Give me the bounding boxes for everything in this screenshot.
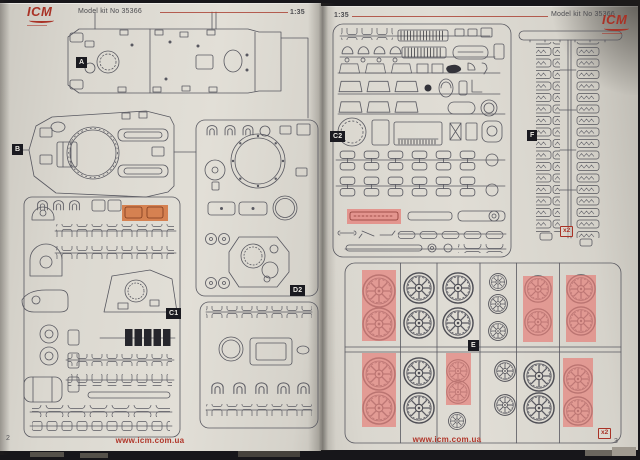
website-url-right: www.icm.com.ua — [392, 435, 502, 444]
brand-text: ICM — [602, 12, 627, 27]
sprue-c1-drawing — [22, 197, 180, 437]
kit-number-left: Model kit No 35366 — [78, 8, 142, 15]
sprue-label-f: F — [527, 130, 537, 141]
page-number-right: 3 — [614, 438, 618, 445]
sprue-e-quantity-badge: x2 — [598, 428, 611, 439]
logo-tagline-rule — [27, 25, 47, 26]
website-url-left: www.icm.com.ua — [95, 436, 205, 445]
sprue-d2-drawing — [196, 120, 318, 296]
icm-logo-right: ICM — [602, 13, 627, 34]
sprue-label-b: B — [12, 144, 23, 155]
photo-of-open-instruction-booklet: ICM Model kit No 35366 1:35 1:35 Model k… — [0, 0, 640, 460]
sprue-f-quantity-badge: x2 — [560, 226, 573, 237]
sprue-b-drawing — [18, 111, 196, 197]
sprue-label-a: A — [76, 57, 87, 68]
highlighted-parts-overlay — [362, 270, 596, 427]
sprue-label-c2: C2 — [330, 131, 345, 142]
sprue-label-e: E — [468, 340, 479, 351]
sprue-label-c1: C1 — [166, 308, 181, 319]
sprue-e-drawing — [345, 263, 621, 443]
sprue-d2-lower-drawing — [200, 302, 318, 428]
logo-tagline-rule — [602, 33, 622, 34]
brand-text: ICM — [27, 4, 52, 19]
header-rule-right — [352, 16, 548, 17]
logo-swoosh — [29, 18, 54, 23]
sprue-artwork — [0, 0, 640, 460]
sprue-label-d2: D2 — [290, 285, 305, 296]
scale-label-left: 1:35 — [290, 9, 305, 16]
sprue-a-drawing — [68, 12, 308, 118]
scale-label-right: 1:35 — [334, 12, 349, 19]
page-number-left: 2 — [6, 435, 10, 442]
sprue-c2-drawing — [333, 24, 511, 257]
header-rule-left — [160, 12, 288, 13]
logo-swoosh — [604, 26, 629, 31]
icm-logo-left: ICM — [27, 5, 52, 26]
